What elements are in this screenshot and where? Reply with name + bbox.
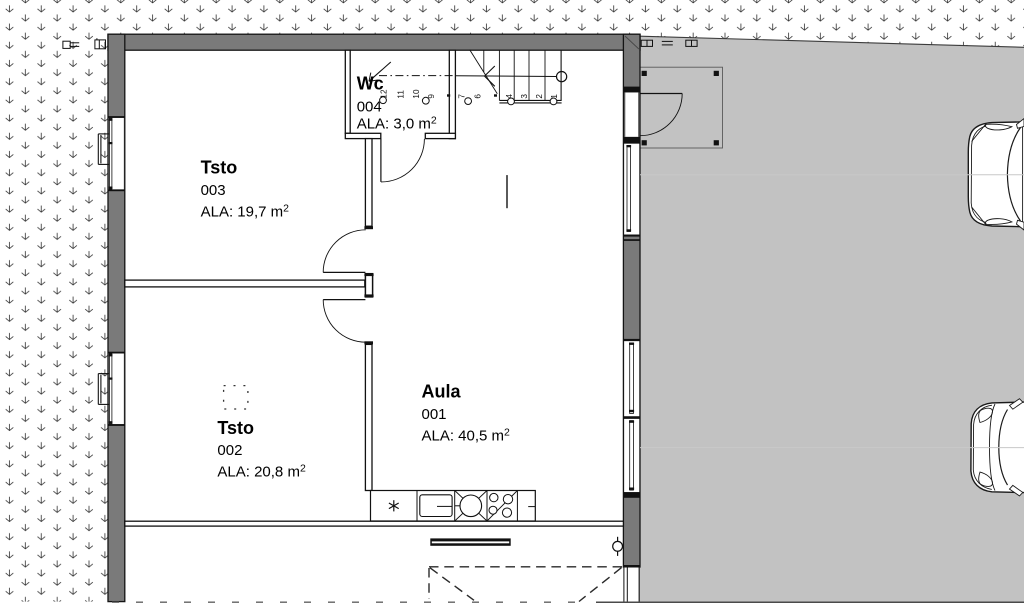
svg-text:001: 001 [422,406,447,423]
svg-text:ALA: 40,5 m2: ALA: 40,5 m2 [422,426,511,444]
svg-text:Wc: Wc [357,74,384,94]
svg-text:6: 6 [474,94,483,99]
svg-text:1: 1 [550,94,559,99]
svg-text:Tsto: Tsto [201,158,238,178]
svg-text:ALA: 20,8 m2: ALA: 20,8 m2 [217,463,306,481]
svg-text:2: 2 [535,94,544,99]
svg-text:003: 003 [201,182,226,199]
svg-text:4: 4 [505,94,514,99]
svg-text:ALA: 19,7 m2: ALA: 19,7 m2 [201,202,290,220]
svg-text:Aula: Aula [422,382,462,402]
svg-text:11: 11 [397,90,406,99]
svg-text:9: 9 [427,94,436,99]
svg-text:7: 7 [458,94,467,99]
svg-text:10: 10 [412,89,421,99]
svg-text:002: 002 [217,442,242,459]
svg-text:3: 3 [520,94,529,99]
svg-text:ALA: 3,0 m2: ALA: 3,0 m2 [357,114,437,132]
svg-text:004: 004 [357,98,382,115]
svg-text:Tsto: Tsto [217,418,254,438]
